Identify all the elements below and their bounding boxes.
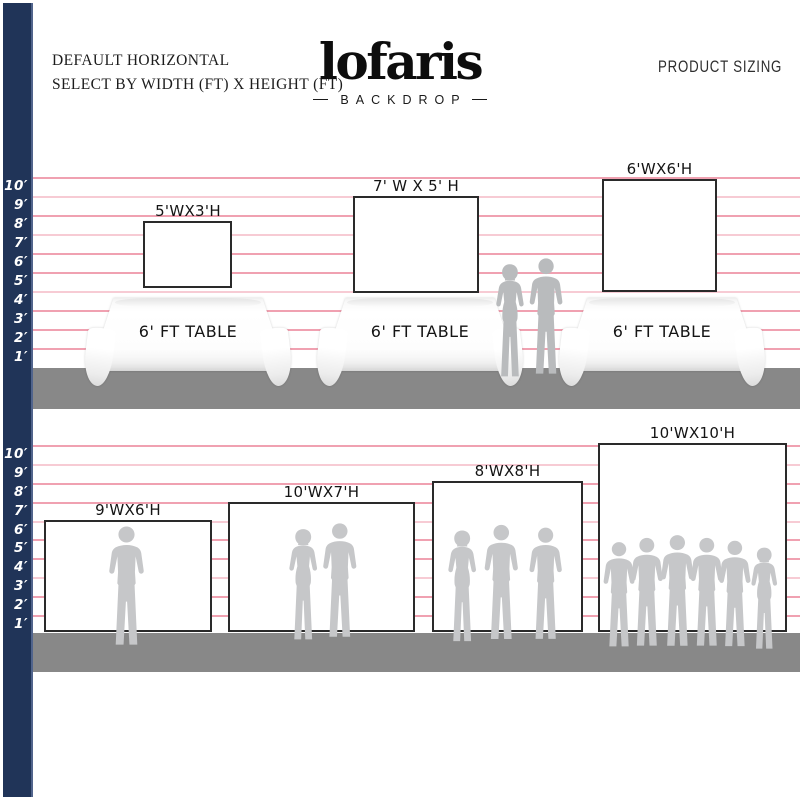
- ruler-label: 8′: [2, 216, 28, 232]
- brand-tagline: BACKDROP: [290, 93, 510, 107]
- banquet-table: 6' FT TABLE: [322, 298, 518, 371]
- ruler-label: 6′: [2, 522, 28, 538]
- backdrop-size-label: 8'WX8'H: [432, 462, 583, 480]
- ruler-label: 5′: [2, 540, 28, 556]
- backdrop-size-label: 10'WX7'H: [228, 483, 415, 501]
- floor: [33, 368, 800, 409]
- ruler-label: 5′: [2, 273, 28, 289]
- table-label: 6' FT TABLE: [564, 322, 760, 341]
- ruler-label: 10′: [2, 446, 28, 462]
- backdrop-size-label: 5'WX3'H: [128, 202, 248, 220]
- man-silhouette: [103, 525, 150, 649]
- backdrop-box-5x3: [143, 221, 232, 288]
- ruler-bar: [3, 3, 33, 797]
- backdrop-box-6x6: [602, 179, 717, 292]
- ruler-label: 7′: [2, 503, 28, 519]
- banquet-table: 6' FT TABLE: [564, 298, 760, 371]
- backdrop-box-7x5: [353, 196, 479, 293]
- backdrop-size-label: 10'WX10'H: [598, 424, 787, 442]
- ruler-label: 3′: [2, 311, 28, 327]
- ruler-label: 2′: [2, 597, 28, 613]
- couple-silhouette: [284, 522, 362, 641]
- backdrop-size-label: 9'WX6'H: [44, 501, 212, 519]
- ruler-label: 10′: [2, 178, 28, 194]
- couple-silhouette: [491, 257, 568, 378]
- product-sizing-chart: DEFAULT HORIZONTAL SELECT BY WIDTH (FT) …: [0, 0, 800, 800]
- banquet-table: 6' FT TABLE: [90, 298, 286, 371]
- ruler-label: 1′: [2, 349, 28, 365]
- brand-logo: lofaris BACKDROP: [290, 36, 510, 107]
- ruler-label: 1′: [2, 616, 28, 632]
- ruler-label: 9′: [2, 465, 28, 481]
- group-of-three-silhouette: [443, 522, 570, 643]
- ruler-label: 7′: [2, 235, 28, 251]
- ruler-label: 9′: [2, 197, 28, 213]
- table-label: 6' FT TABLE: [322, 322, 518, 341]
- ruler-label: 8′: [2, 484, 28, 500]
- ruler-label: 4′: [2, 559, 28, 575]
- ruler-label: 4′: [2, 292, 28, 308]
- ruler-label: 6′: [2, 254, 28, 270]
- brand-name: lofaris: [290, 36, 510, 89]
- backdrop-size-label: 7' W X 5' H: [343, 177, 489, 195]
- backdrop-size-label: 6'WX6'H: [592, 160, 727, 178]
- page-title: PRODUCT SIZING: [658, 57, 782, 77]
- ruler-label: 2′: [2, 330, 28, 346]
- group-of-six-silhouette: [598, 531, 785, 650]
- table-label: 6' FT TABLE: [90, 322, 286, 341]
- ruler-label: 3′: [2, 578, 28, 594]
